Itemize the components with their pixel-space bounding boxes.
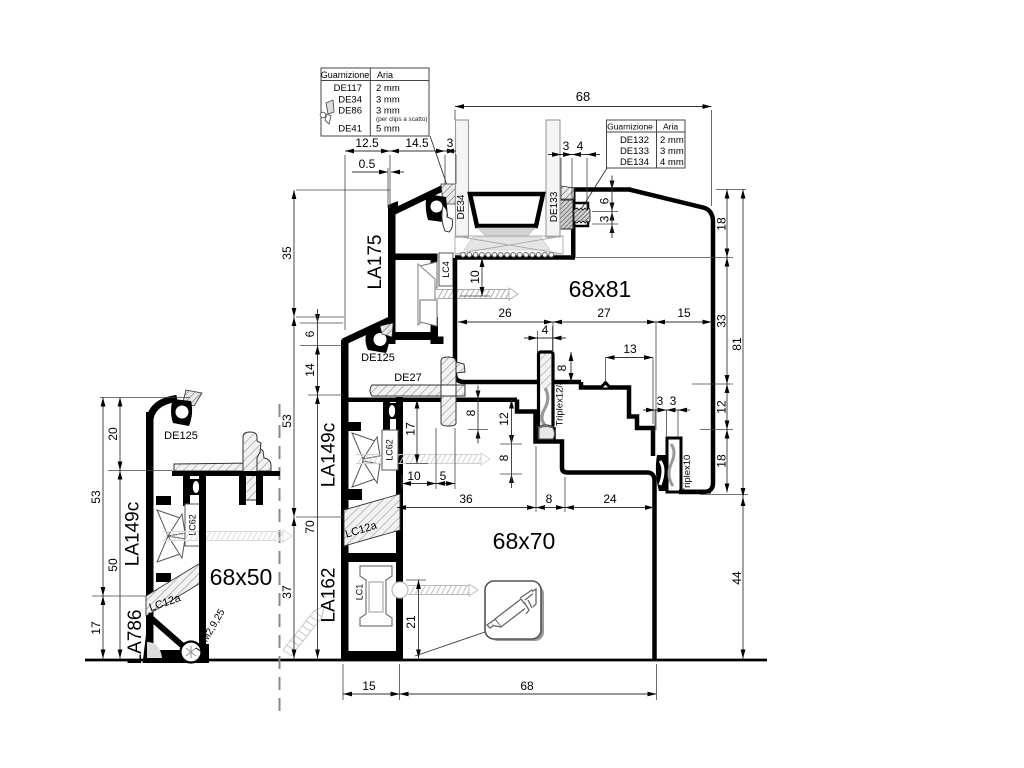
svg-text:17: 17 (89, 621, 103, 635)
svg-text:LC4: LC4 (441, 261, 451, 278)
svg-text:17: 17 (404, 422, 418, 436)
svg-text:6: 6 (598, 197, 612, 204)
svg-text:3 mm: 3 mm (376, 106, 400, 117)
svg-text:20: 20 (106, 427, 120, 441)
svg-text:21: 21 (404, 615, 418, 629)
svg-text:LA786: LA786 (125, 610, 146, 665)
svg-text:15: 15 (677, 306, 691, 320)
svg-text:DE86: DE86 (338, 106, 362, 117)
svg-text:68: 68 (576, 89, 590, 104)
svg-text:12.5: 12.5 (355, 136, 379, 150)
svg-text:33: 33 (715, 314, 729, 328)
svg-text:8: 8 (464, 409, 478, 416)
svg-text:DE133: DE133 (549, 191, 560, 222)
svg-text:3: 3 (447, 136, 454, 150)
svg-text:10: 10 (407, 469, 421, 483)
svg-text:(per clips a scatto): (per clips a scatto) (376, 116, 427, 123)
svg-text:81: 81 (730, 337, 744, 351)
svg-text:DE133: DE133 (620, 146, 649, 157)
svg-text:DE125: DE125 (361, 352, 395, 364)
svg-text:50: 50 (106, 558, 120, 572)
svg-text:Aria: Aria (663, 122, 678, 132)
svg-text:27: 27 (597, 306, 611, 320)
svg-text:8: 8 (497, 454, 511, 461)
svg-text:8: 8 (555, 364, 569, 371)
svg-text:DE117: DE117 (334, 83, 362, 94)
svg-text:2 mm: 2 mm (376, 83, 400, 94)
svg-text:3 mm: 3 mm (376, 95, 400, 106)
svg-text:10: 10 (468, 270, 482, 284)
svg-text:70: 70 (303, 520, 317, 534)
svg-text:68x50: 68x50 (210, 564, 273, 590)
svg-text:Triplex10: Triplex10 (682, 455, 693, 494)
svg-text:68: 68 (520, 679, 534, 693)
svg-text:3: 3 (598, 215, 612, 222)
svg-text:44: 44 (730, 571, 744, 585)
svg-text:LC1: LC1 (355, 584, 365, 601)
svg-text:LA162: LA162 (319, 568, 340, 623)
svg-text:53: 53 (89, 490, 103, 504)
svg-text:18: 18 (715, 454, 729, 468)
svg-text:14: 14 (303, 363, 317, 377)
svg-text:2 mm: 2 mm (660, 135, 684, 146)
svg-text:5 mm: 5 mm (376, 124, 400, 135)
svg-text:3: 3 (657, 394, 664, 408)
svg-text:Aria: Aria (377, 70, 393, 80)
svg-text:5: 5 (440, 469, 447, 483)
svg-text:24: 24 (603, 492, 617, 506)
svg-text:12: 12 (715, 400, 729, 414)
svg-text:DE27: DE27 (394, 372, 422, 384)
svg-text:6: 6 (303, 330, 317, 337)
svg-text:68x81: 68x81 (569, 276, 632, 302)
svg-text:68x70: 68x70 (493, 528, 556, 554)
svg-text:4: 4 (577, 139, 584, 153)
svg-text:DE34: DE34 (456, 194, 467, 219)
svg-text:12: 12 (497, 412, 511, 426)
svg-text:DE41: DE41 (338, 124, 362, 135)
svg-text:DE125: DE125 (164, 430, 198, 442)
svg-text:LA149c: LA149c (123, 502, 144, 566)
svg-text:LA175: LA175 (365, 235, 386, 290)
svg-text:3: 3 (670, 394, 677, 408)
svg-text:18: 18 (715, 217, 729, 231)
svg-text:13: 13 (623, 342, 637, 356)
svg-text:Triplex12/4: Triplex12/4 (555, 380, 566, 427)
svg-text:LA149c: LA149c (319, 423, 340, 487)
svg-text:DE134: DE134 (620, 157, 649, 168)
svg-text:3: 3 (563, 139, 570, 153)
svg-text:36: 36 (459, 492, 473, 506)
svg-text:4: 4 (542, 323, 549, 337)
svg-text:53: 53 (280, 414, 294, 428)
svg-text:15: 15 (362, 679, 376, 693)
svg-text:37: 37 (280, 585, 294, 599)
svg-text:Guarnizione: Guarnizione (321, 70, 370, 80)
svg-text:26: 26 (498, 306, 512, 320)
svg-text:35: 35 (280, 246, 294, 260)
svg-text:Guarnizione: Guarnizione (607, 122, 653, 132)
svg-text:DE132: DE132 (620, 135, 649, 146)
svg-text:DE34: DE34 (338, 95, 362, 106)
svg-text:0.5: 0.5 (359, 157, 376, 171)
svg-text:14.5: 14.5 (405, 136, 429, 150)
svg-text:8: 8 (546, 492, 553, 506)
svg-text:4 mm: 4 mm (660, 157, 684, 168)
svg-text:3 mm: 3 mm (660, 146, 684, 157)
svg-text:LC62: LC62 (385, 439, 395, 461)
